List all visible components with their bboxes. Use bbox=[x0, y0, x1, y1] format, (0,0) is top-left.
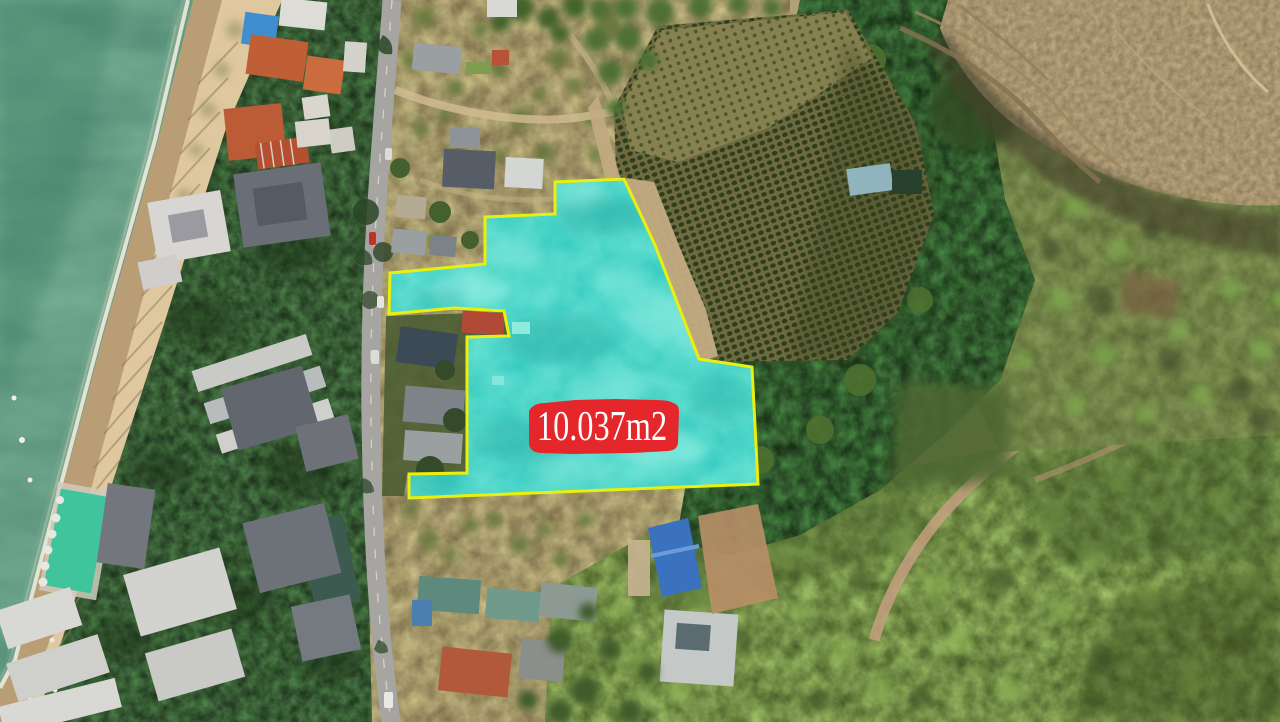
svg-text:10.037m2: 10.037m2 bbox=[537, 404, 667, 450]
